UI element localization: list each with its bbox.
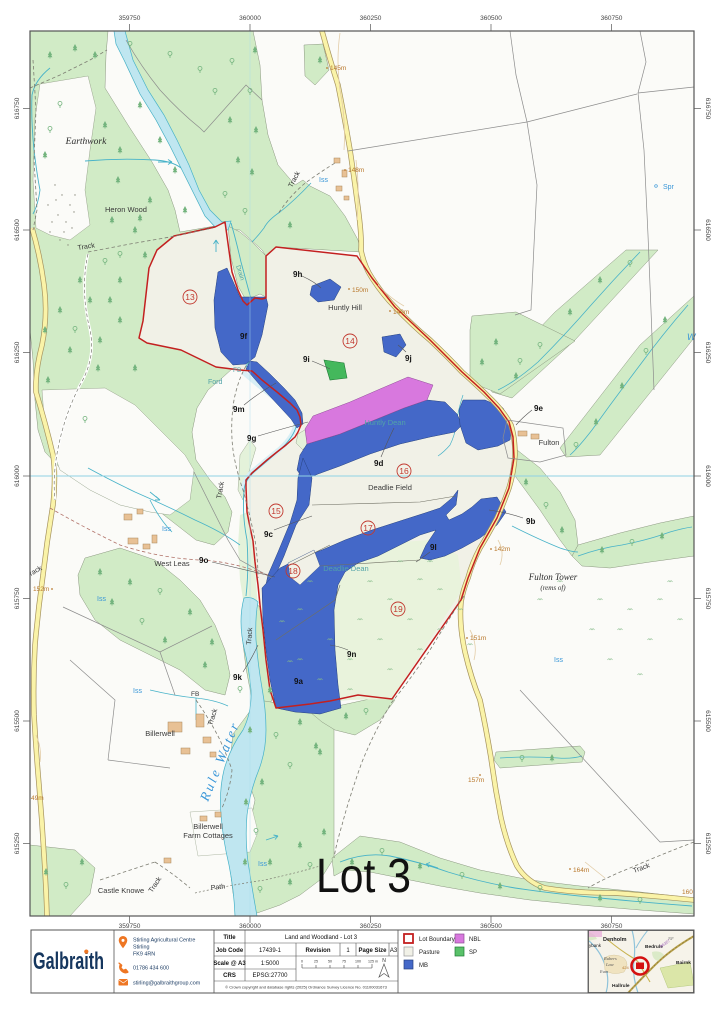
svg-text:9g: 9g bbox=[247, 434, 256, 443]
svg-text:0: 0 bbox=[301, 960, 303, 964]
svg-text:Iss: Iss bbox=[133, 688, 142, 695]
svg-text:Bairnk: Bairnk bbox=[676, 960, 691, 966]
svg-text:616500: 616500 bbox=[704, 219, 711, 241]
svg-text:Page Size: Page Size bbox=[358, 948, 387, 954]
svg-text:9h: 9h bbox=[293, 270, 302, 279]
svg-text:Law: Law bbox=[605, 962, 614, 967]
svg-text:9d: 9d bbox=[374, 459, 383, 468]
svg-text:Iss: Iss bbox=[258, 861, 267, 868]
svg-text:Iss: Iss bbox=[554, 657, 563, 664]
svg-text:Title: Title bbox=[223, 935, 236, 941]
svg-text:615750: 615750 bbox=[14, 587, 21, 609]
svg-text:SP: SP bbox=[469, 950, 477, 956]
svg-text:359750: 359750 bbox=[119, 923, 141, 930]
svg-text:Huntly Dean: Huntly Dean bbox=[364, 418, 405, 427]
svg-text:Earthwork: Earthwork bbox=[65, 137, 107, 147]
svg-text:FK9 4RN: FK9 4RN bbox=[133, 952, 155, 958]
svg-text:N: N bbox=[382, 958, 386, 964]
svg-text:148m: 148m bbox=[348, 167, 364, 174]
svg-text:Revision: Revision bbox=[305, 948, 330, 954]
svg-text:360500: 360500 bbox=[480, 15, 502, 22]
svg-text:EPSG:27700: EPSG:27700 bbox=[252, 973, 288, 979]
svg-text:49m: 49m bbox=[31, 795, 44, 802]
svg-text:160: 160 bbox=[682, 889, 693, 896]
svg-text:157m: 157m bbox=[468, 777, 484, 784]
svg-text:ybank: ybank bbox=[589, 943, 602, 948]
svg-text:616750: 616750 bbox=[14, 97, 21, 119]
svg-text:16: 16 bbox=[399, 466, 409, 476]
svg-text:14: 14 bbox=[345, 336, 355, 346]
svg-text:W: W bbox=[687, 332, 697, 342]
svg-text:360500: 360500 bbox=[480, 923, 502, 930]
svg-text:615500: 615500 bbox=[14, 710, 21, 732]
svg-text:615750: 615750 bbox=[704, 588, 711, 610]
svg-text:Huntly Hill: Huntly Hill bbox=[328, 303, 362, 312]
svg-text:A3: A3 bbox=[390, 948, 398, 954]
svg-text:Pasture: Pasture bbox=[419, 950, 440, 956]
svg-text:9m: 9m bbox=[233, 405, 245, 414]
svg-text:01786 434 600: 01786 434 600 bbox=[133, 966, 169, 972]
svg-text:9o: 9o bbox=[199, 556, 208, 565]
svg-text:145m: 145m bbox=[330, 65, 346, 72]
svg-text:125 m: 125 m bbox=[368, 960, 378, 964]
svg-text:150m: 150m bbox=[352, 287, 368, 294]
svg-text:142m: 142m bbox=[494, 546, 510, 553]
svg-text:17439-1: 17439-1 bbox=[259, 948, 282, 954]
svg-text:19: 19 bbox=[393, 604, 403, 614]
svg-text:616250: 616250 bbox=[14, 341, 21, 363]
svg-text:Deadlie Field: Deadlie Field bbox=[368, 483, 412, 492]
svg-text:Land and Woodland - Lot 3: Land and Woodland - Lot 3 bbox=[285, 935, 358, 941]
svg-text:100: 100 bbox=[355, 960, 361, 964]
svg-text:1:5000: 1:5000 bbox=[261, 961, 280, 967]
svg-text:616750: 616750 bbox=[704, 98, 711, 120]
svg-text:616500: 616500 bbox=[14, 219, 21, 241]
svg-text:CRS: CRS bbox=[223, 973, 236, 979]
svg-text:360000: 360000 bbox=[239, 923, 261, 930]
svg-text:FB: FB bbox=[191, 691, 199, 698]
svg-text:Deadlie Dean: Deadlie Dean bbox=[323, 564, 368, 573]
svg-text:Denholm: Denholm bbox=[603, 937, 627, 943]
svg-text:Lot 3: Lot 3 bbox=[316, 850, 411, 903]
svg-text:Iss: Iss bbox=[319, 177, 328, 184]
svg-text:Billerwell: Billerwell bbox=[145, 729, 175, 738]
svg-text:9a: 9a bbox=[294, 677, 303, 686]
svg-text:615500: 615500 bbox=[704, 710, 711, 732]
svg-text:149m: 149m bbox=[393, 309, 409, 316]
svg-text:West Leas: West Leas bbox=[154, 559, 190, 568]
svg-text:Iss: Iss bbox=[162, 526, 171, 533]
svg-text:615250: 615250 bbox=[704, 833, 711, 855]
svg-text:359750: 359750 bbox=[119, 15, 141, 22]
svg-text:Galbraith: Galbraith bbox=[33, 948, 104, 975]
svg-text:Stirling Agricultural Centre: Stirling Agricultural Centre bbox=[133, 938, 195, 944]
svg-text:9k: 9k bbox=[233, 673, 242, 682]
svg-text:360250: 360250 bbox=[360, 923, 382, 930]
svg-text:Job Code: Job Code bbox=[216, 948, 244, 954]
svg-text:Castle Knowe: Castle Knowe bbox=[98, 886, 144, 895]
svg-text:Scale @ A3: Scale @ A3 bbox=[213, 961, 246, 967]
svg-text:9e: 9e bbox=[534, 404, 543, 413]
svg-text:© Crown copyright and database: © Crown copyright and database rights (2… bbox=[225, 985, 387, 990]
svg-text:9l: 9l bbox=[430, 543, 437, 552]
svg-text:424: 424 bbox=[622, 965, 629, 970]
svg-text:615250: 615250 bbox=[14, 832, 21, 854]
svg-text:616000: 616000 bbox=[14, 465, 21, 487]
svg-text:151m: 151m bbox=[470, 635, 486, 642]
svg-text:50: 50 bbox=[328, 960, 332, 964]
svg-text:Hallrule: Hallrule bbox=[612, 983, 630, 989]
svg-text:Lot Boundary: Lot Boundary bbox=[419, 937, 455, 943]
svg-text:Farm Cottages: Farm Cottages bbox=[183, 831, 233, 840]
svg-text:616000: 616000 bbox=[704, 465, 711, 487]
svg-text:75: 75 bbox=[342, 960, 346, 964]
svg-text:9n: 9n bbox=[347, 650, 356, 659]
svg-text:stirling@galbraithgroup.com: stirling@galbraithgroup.com bbox=[133, 981, 201, 987]
svg-text:Fulton Tower: Fulton Tower bbox=[528, 572, 578, 582]
svg-text:(rems of): (rems of) bbox=[540, 584, 566, 592]
svg-text:360000: 360000 bbox=[239, 15, 261, 22]
svg-text:Iss: Iss bbox=[97, 596, 106, 603]
svg-text:9b: 9b bbox=[526, 517, 535, 526]
svg-text:Heron Wood: Heron Wood bbox=[105, 205, 147, 214]
svg-text:Ford: Ford bbox=[208, 379, 223, 386]
svg-text:15: 15 bbox=[271, 506, 281, 516]
svg-text:Evan: Evan bbox=[599, 969, 608, 974]
svg-text:Fulton: Fulton bbox=[539, 438, 560, 447]
svg-text:17: 17 bbox=[363, 523, 373, 533]
svg-text:152m: 152m bbox=[33, 586, 49, 593]
svg-text:9i: 9i bbox=[303, 355, 310, 364]
svg-text:9f: 9f bbox=[240, 332, 247, 341]
svg-text:MB: MB bbox=[419, 963, 428, 969]
svg-text:18: 18 bbox=[288, 566, 298, 576]
svg-text:Billerwell: Billerwell bbox=[193, 822, 223, 831]
svg-text:360750: 360750 bbox=[601, 15, 623, 22]
svg-text:Stirling: Stirling bbox=[133, 945, 149, 951]
svg-text:Spr: Spr bbox=[663, 184, 675, 191]
svg-text:Rubers: Rubers bbox=[603, 956, 617, 961]
svg-text:360750: 360750 bbox=[601, 923, 623, 930]
svg-text:25: 25 bbox=[314, 960, 318, 964]
svg-text:164m: 164m bbox=[573, 867, 589, 874]
svg-text:9c: 9c bbox=[264, 530, 273, 539]
svg-text:NBL: NBL bbox=[469, 937, 481, 943]
svg-text:360250: 360250 bbox=[360, 15, 382, 22]
svg-text:13: 13 bbox=[185, 292, 195, 302]
svg-text:FB: FB bbox=[233, 367, 241, 374]
svg-text:616250: 616250 bbox=[704, 342, 711, 364]
svg-text:9j: 9j bbox=[405, 354, 412, 363]
svg-text:Track: Track bbox=[246, 627, 254, 645]
